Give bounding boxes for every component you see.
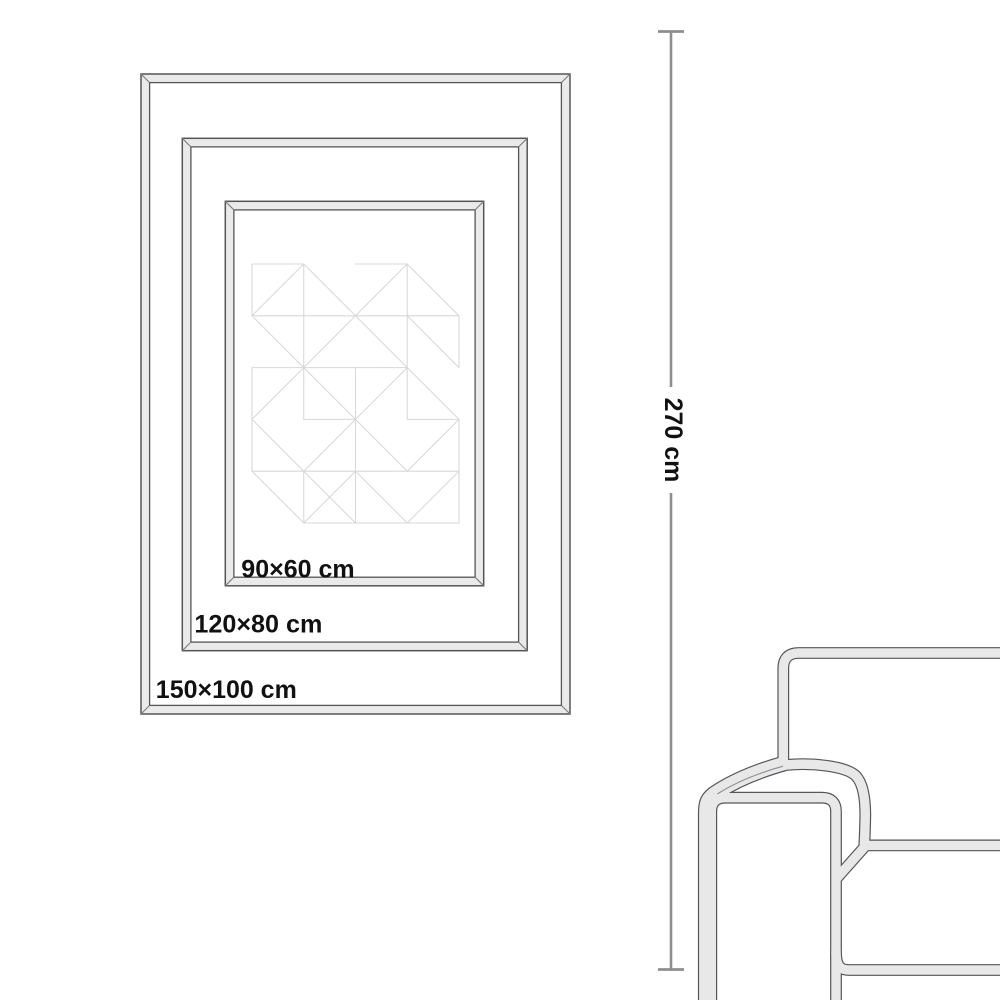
- svg-text:150×100 cm: 150×100 cm: [156, 676, 297, 704]
- svg-text:120×80 cm: 120×80 cm: [194, 611, 322, 639]
- svg-text:90×60 cm: 90×60 cm: [241, 556, 354, 584]
- svg-text:270 cm: 270 cm: [659, 398, 687, 483]
